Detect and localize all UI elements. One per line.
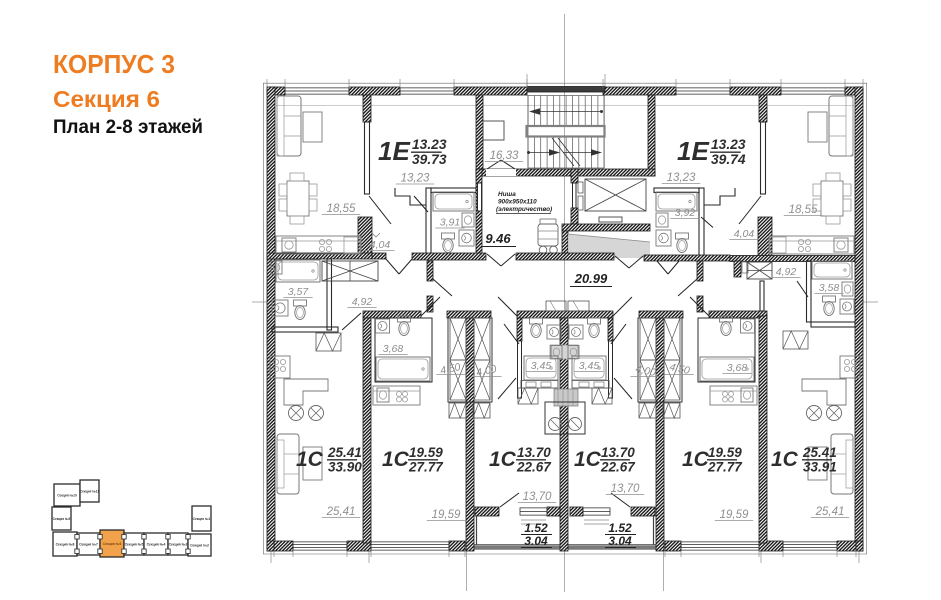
svg-text:1С: 1С xyxy=(382,448,410,471)
svg-text:13.23: 13.23 xyxy=(711,137,746,152)
svg-text:4,04: 4,04 xyxy=(370,239,391,251)
svg-text:13,23: 13,23 xyxy=(401,173,430,185)
svg-text:4,92: 4,92 xyxy=(776,266,797,278)
svg-text:20.99: 20.99 xyxy=(574,271,608,286)
svg-text:900х950х110: 900х950х110 xyxy=(498,199,537,206)
svg-text:3,57: 3,57 xyxy=(288,286,310,298)
svg-text:1Е: 1Е xyxy=(378,136,410,166)
svg-text:1С: 1С xyxy=(296,448,324,471)
svg-text:Секция №4: Секция №4 xyxy=(147,543,166,547)
svg-text:1С: 1С xyxy=(489,448,517,471)
svg-text:27.77: 27.77 xyxy=(707,459,743,474)
svg-text:33.91: 33.91 xyxy=(803,459,837,474)
svg-text:1.52: 1.52 xyxy=(524,521,548,535)
svg-text:3,68: 3,68 xyxy=(727,362,748,374)
svg-text:3,92: 3,92 xyxy=(675,207,696,219)
svg-text:13.23: 13.23 xyxy=(412,137,447,152)
svg-text:25,41: 25,41 xyxy=(326,506,356,518)
svg-text:Секция №11: Секция №11 xyxy=(80,490,99,494)
svg-text:4,92: 4,92 xyxy=(352,296,373,308)
svg-text:16,33: 16,33 xyxy=(490,150,519,162)
svg-text:КОРПУС 3: КОРПУС 3 xyxy=(53,49,175,79)
svg-text:Секция №5: Секция №5 xyxy=(125,543,144,547)
svg-text:25.41: 25.41 xyxy=(802,445,837,460)
svg-text:3,45: 3,45 xyxy=(531,360,552,372)
svg-text:18,55: 18,55 xyxy=(327,203,356,215)
svg-text:1С: 1С xyxy=(771,448,799,471)
svg-text:1С: 1С xyxy=(682,448,710,471)
svg-text:Секция №1: Секция №1 xyxy=(193,517,211,521)
svg-text:22.67: 22.67 xyxy=(516,459,552,474)
svg-text:3,91: 3,91 xyxy=(440,217,460,229)
svg-text:1С: 1С xyxy=(574,448,602,471)
svg-text:Секция №2: Секция №2 xyxy=(190,544,209,548)
svg-text:1.52: 1.52 xyxy=(608,521,632,535)
svg-text:33.90: 33.90 xyxy=(328,459,362,474)
svg-text:13,23: 13,23 xyxy=(667,172,696,184)
svg-text:4,04: 4,04 xyxy=(734,228,755,240)
svg-text:9.46: 9.46 xyxy=(485,231,511,246)
svg-text:39.74: 39.74 xyxy=(711,152,746,167)
svg-text:13.70: 13.70 xyxy=(601,445,635,460)
svg-text:22.67: 22.67 xyxy=(600,459,636,474)
svg-text:3,58: 3,58 xyxy=(819,282,840,294)
svg-text:19,59: 19,59 xyxy=(432,509,461,521)
svg-text:27.77: 27.77 xyxy=(408,459,444,474)
svg-text:Секция №8: Секция №8 xyxy=(56,543,75,547)
svg-text:1Е: 1Е xyxy=(677,136,709,166)
svg-text:13,70: 13,70 xyxy=(611,483,640,495)
svg-text:13,70: 13,70 xyxy=(523,491,552,503)
svg-text:Секция №7: Секция №7 xyxy=(79,543,98,547)
svg-text:План 2-8 этажей: План 2-8 этажей xyxy=(53,116,203,138)
svg-text:Ниша: Ниша xyxy=(498,191,516,198)
svg-text:25.41: 25.41 xyxy=(327,445,362,460)
svg-text:25,41: 25,41 xyxy=(815,506,845,518)
svg-text:(электричество): (электричество) xyxy=(496,206,552,213)
svg-text:3,45: 3,45 xyxy=(579,360,600,372)
svg-text:3.04: 3.04 xyxy=(524,534,548,548)
svg-text:Секция №6: Секция №6 xyxy=(103,542,122,546)
svg-text:3.04: 3.04 xyxy=(608,534,632,548)
svg-text:39.73: 39.73 xyxy=(412,152,447,167)
svg-text:Секция №3: Секция №3 xyxy=(169,543,188,547)
svg-text:3,68: 3,68 xyxy=(383,343,404,355)
svg-text:19.59: 19.59 xyxy=(409,445,443,460)
svg-text:19,59: 19,59 xyxy=(720,509,749,521)
svg-text:Секция 6: Секция 6 xyxy=(53,86,160,112)
svg-text:19.59: 19.59 xyxy=(708,445,742,460)
svg-text:Секция №10: Секция №10 xyxy=(57,494,77,498)
svg-text:18,55: 18,55 xyxy=(789,204,818,216)
svg-text:13.70: 13.70 xyxy=(517,445,551,460)
svg-text:Секция №9: Секция №9 xyxy=(53,517,71,521)
